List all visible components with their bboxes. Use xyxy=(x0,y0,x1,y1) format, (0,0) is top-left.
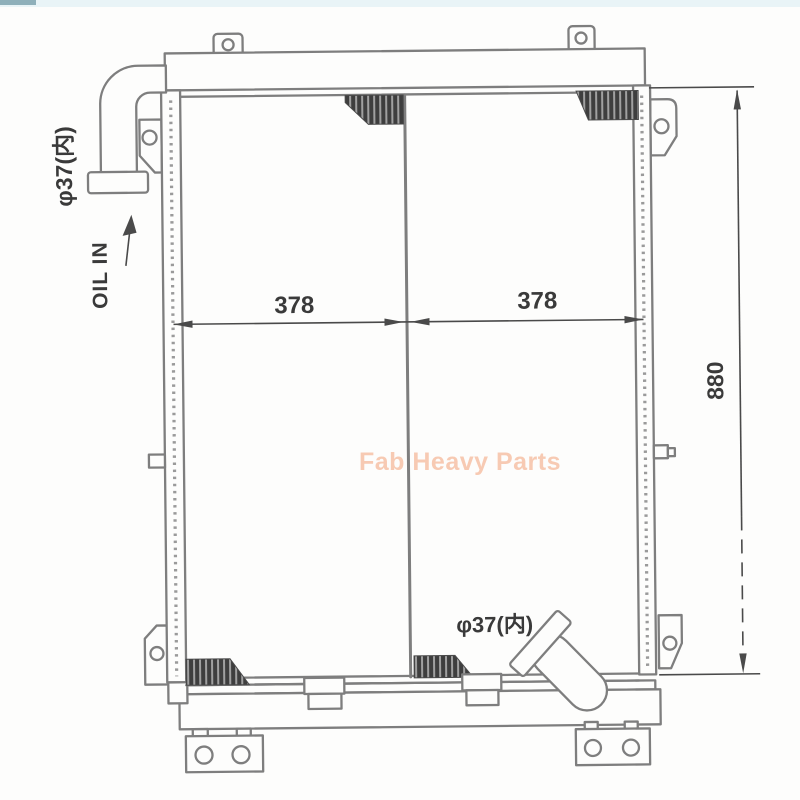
scan-edge-strip xyxy=(0,0,800,7)
drawing-group: 378 378 880 φ37(内) OIL IN φ37(内) xyxy=(49,24,761,773)
oil-in-label: OIL IN xyxy=(89,241,113,309)
diagram-canvas: 378 378 880 φ37(内) OIL IN φ37(内) Fab Hea… xyxy=(0,0,800,800)
hatched-baffle-blocks xyxy=(180,90,644,685)
right-side-tank-strip xyxy=(633,85,656,674)
core-outline xyxy=(180,93,639,686)
watermark-text: Fab Heavy Parts xyxy=(359,448,561,476)
height-dimension: 880 xyxy=(649,87,760,675)
oil-in-arrow xyxy=(122,215,137,266)
left-side-tank-strip xyxy=(161,90,187,703)
dim-width-right-label: 378 xyxy=(517,287,557,314)
inlet-diameter-label: φ37(内) xyxy=(50,126,77,207)
dim-height-label: 880 xyxy=(702,361,728,400)
dim-width-left-label: 378 xyxy=(274,292,314,319)
outlet-diameter-label: φ37(内) xyxy=(456,612,533,638)
top-tank xyxy=(165,48,645,97)
oil-cooler-technical-drawing: 378 378 880 φ37(内) OIL IN φ37(内) Fab Hea… xyxy=(0,0,800,800)
